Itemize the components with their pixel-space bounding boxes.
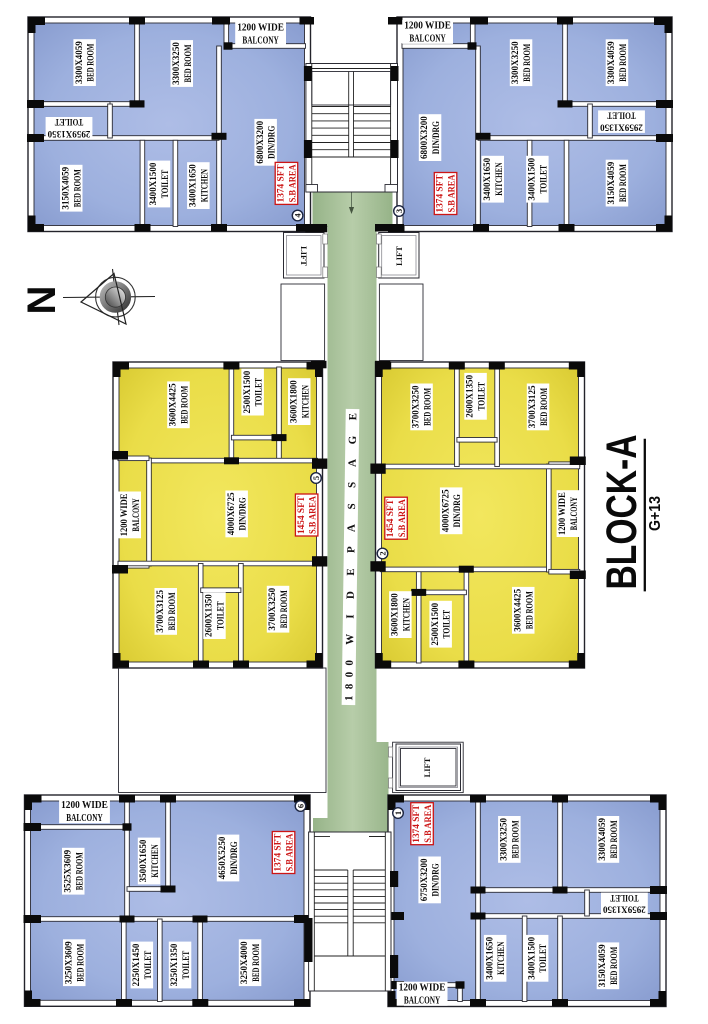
svg-text:TOILET: TOILET <box>143 950 154 979</box>
svg-text:BED ROOM: BED ROOM <box>609 947 620 985</box>
svg-text:6: 6 <box>296 804 306 808</box>
svg-text:4000X6725: 4000X6725 <box>226 492 237 535</box>
svg-text:1200 WIDE: 1200 WIDE <box>119 494 130 537</box>
svg-text:3300X4059: 3300X4059 <box>606 41 617 84</box>
svg-text:BED ROOM: BED ROOM <box>72 169 83 207</box>
svg-text:6800X3200: 6800X3200 <box>419 116 430 159</box>
svg-text:DIN/DRG: DIN/DRG <box>229 841 240 875</box>
svg-text:TOILET: TOILET <box>54 116 83 127</box>
svg-text:3525X3609: 3525X3609 <box>62 850 73 893</box>
svg-text:6750X3200: 6750X3200 <box>419 858 430 901</box>
svg-text:TOILET: TOILET <box>254 377 265 406</box>
svg-text:3600X4425: 3600X4425 <box>512 589 523 632</box>
svg-text:LIFT: LIFT <box>299 246 309 266</box>
svg-text:2959X1350: 2959X1350 <box>47 128 90 139</box>
svg-text:BED ROOM: BED ROOM <box>167 592 178 630</box>
svg-text:KITCHEN: KITCHEN <box>150 844 161 877</box>
svg-text:1454 SFT: 1454 SFT <box>296 495 307 534</box>
svg-text:1374 SFT: 1374 SFT <box>435 174 446 213</box>
svg-text:1374 SFT: 1374 SFT <box>276 164 287 203</box>
svg-text:DIN/DRG: DIN/DRG <box>431 121 442 155</box>
svg-text:TOILET: TOILET <box>538 944 549 973</box>
svg-text:3150X4059: 3150X4059 <box>606 162 617 205</box>
svg-text:BALCONY: BALCONY <box>66 813 103 824</box>
svg-text:3600X1800: 3600X1800 <box>288 380 299 423</box>
svg-text:S.B AREA: S.B AREA <box>308 496 319 534</box>
svg-text:3300X3250: 3300X3250 <box>499 818 510 861</box>
svg-text:S.B AREA: S.B AREA <box>447 174 458 212</box>
svg-text:N: N <box>20 286 64 315</box>
svg-text:1200 WIDE: 1200 WIDE <box>237 22 284 33</box>
svg-text:1: 1 <box>393 811 403 815</box>
svg-text:3400X1500: 3400X1500 <box>526 937 537 980</box>
svg-text:1454 SFT: 1454 SFT <box>385 499 396 538</box>
svg-text:LIFT: LIFT <box>394 246 404 266</box>
svg-text:2600X1350: 2600X1350 <box>465 375 476 418</box>
svg-text:TOILET: TOILET <box>160 169 171 198</box>
svg-text:3300X4059: 3300X4059 <box>74 41 85 84</box>
svg-text:BALCONY: BALCONY <box>242 35 279 46</box>
svg-text:DIN/DRG: DIN/DRG <box>238 497 249 531</box>
svg-text:3300X3250: 3300X3250 <box>171 42 182 85</box>
svg-text:S.B AREA: S.B AREA <box>288 164 299 202</box>
svg-text:BALCONY: BALCONY <box>131 498 142 531</box>
svg-text:BED ROOM: BED ROOM <box>251 944 262 982</box>
svg-text:BED ROOM: BED ROOM <box>423 388 434 426</box>
svg-text:BED ROOM: BED ROOM <box>86 44 97 82</box>
svg-text:6800X3200: 6800X3200 <box>255 121 266 164</box>
svg-text:TOILET: TOILET <box>181 950 192 979</box>
svg-text:3400X1500: 3400X1500 <box>148 162 159 205</box>
svg-text:BED ROOM: BED ROOM <box>74 852 85 890</box>
svg-text:3300X3250: 3300X3250 <box>510 41 521 84</box>
svg-text:G+13: G+13 <box>647 496 664 531</box>
svg-text:4000X6725: 4000X6725 <box>440 489 451 532</box>
svg-text:2500X1500: 2500X1500 <box>430 603 441 646</box>
svg-text:DIN/DRG: DIN/DRG <box>267 125 278 159</box>
svg-text:3400X1500: 3400X1500 <box>527 158 538 201</box>
svg-text:1200 WIDE: 1200 WIDE <box>399 983 446 994</box>
svg-text:BALCONY: BALCONY <box>569 497 580 530</box>
svg-text:BED ROOM: BED ROOM <box>609 820 620 858</box>
svg-text:BED ROOM: BED ROOM <box>618 44 629 82</box>
svg-text:3700X3125: 3700X3125 <box>527 385 538 428</box>
svg-text:1200 WIDE: 1200 WIDE <box>61 800 108 811</box>
svg-text:2600X1350: 2600X1350 <box>204 594 215 637</box>
svg-text:BED ROOM: BED ROOM <box>539 388 550 426</box>
svg-text:3250X3609: 3250X3609 <box>63 941 74 984</box>
svg-text:3400X1650: 3400X1650 <box>484 937 495 980</box>
svg-text:BALCONY: BALCONY <box>409 34 446 45</box>
svg-text:3700X3250: 3700X3250 <box>267 588 278 631</box>
svg-text:BED ROOM: BED ROOM <box>75 944 86 982</box>
svg-text:5: 5 <box>311 476 321 480</box>
svg-text:3600X1800: 3600X1800 <box>390 593 401 636</box>
svg-text:3700X3250: 3700X3250 <box>411 385 422 428</box>
svg-text:3150X4059: 3150X4059 <box>60 167 71 210</box>
svg-text:TOILET: TOILET <box>477 382 488 411</box>
svg-text:2: 2 <box>378 551 388 555</box>
svg-text:DIN/DRG: DIN/DRG <box>452 494 463 528</box>
svg-text:3600X4425: 3600X4425 <box>168 383 179 426</box>
svg-text:BED ROOM: BED ROOM <box>618 164 629 202</box>
svg-text:1374 SFT: 1374 SFT <box>411 804 422 843</box>
svg-text:2500X1500: 2500X1500 <box>242 371 253 414</box>
svg-text:BALCONY: BALCONY <box>404 996 441 1007</box>
svg-text:3700X3125: 3700X3125 <box>155 590 166 633</box>
svg-text:3250X4000: 3250X4000 <box>239 941 250 984</box>
svg-text:3400X1650: 3400X1650 <box>188 164 199 207</box>
svg-text:TOILET: TOILET <box>607 110 636 121</box>
svg-text:S.B AREA: S.B AREA <box>423 805 434 843</box>
svg-text:BLOCK-A: BLOCK-A <box>598 435 646 590</box>
svg-text:BED ROOM: BED ROOM <box>279 590 290 628</box>
svg-text:KITCHEN: KITCHEN <box>199 169 210 202</box>
svg-text:3300X4059: 3300X4059 <box>597 818 608 861</box>
svg-text:BED ROOM: BED ROOM <box>522 44 533 82</box>
svg-text:S.B AREA: S.B AREA <box>285 833 296 871</box>
svg-text:3: 3 <box>394 209 404 213</box>
svg-text:3500X1650: 3500X1650 <box>138 839 149 882</box>
svg-text:3250X1350: 3250X1350 <box>169 943 180 986</box>
svg-text:BED ROOM: BED ROOM <box>180 386 191 424</box>
svg-text:4650X5250: 4650X5250 <box>217 836 228 879</box>
svg-text:BED ROOM: BED ROOM <box>510 820 521 858</box>
svg-text:2959X1350: 2959X1350 <box>600 122 643 133</box>
svg-text:BED ROOM: BED ROOM <box>183 45 194 83</box>
svg-text:3150X4059: 3150X4059 <box>597 944 608 987</box>
svg-text:KITCHEN: KITCHEN <box>300 385 311 418</box>
svg-text:1200 WIDE: 1200 WIDE <box>404 21 451 32</box>
svg-text:2959X1350: 2959X1350 <box>603 904 646 915</box>
svg-text:2250X1450: 2250X1450 <box>131 943 142 986</box>
svg-text:TOILET: TOILET <box>216 601 227 630</box>
svg-text:S.B AREA: S.B AREA <box>397 499 408 537</box>
svg-text:TOILET: TOILET <box>610 892 639 903</box>
svg-text:BED ROOM: BED ROOM <box>524 591 535 629</box>
svg-text:KITCHEN: KITCHEN <box>494 163 505 196</box>
svg-text:KITCHEN: KITCHEN <box>496 942 507 975</box>
svg-text:KITCHEN: KITCHEN <box>401 598 412 631</box>
svg-text:LIFT: LIFT <box>422 757 432 777</box>
svg-text:DIN/DRG: DIN/DRG <box>431 863 442 897</box>
svg-text:1200 WIDE: 1200 WIDE <box>557 492 568 535</box>
svg-text:TOILET: TOILET <box>538 164 549 193</box>
svg-text:3400X1650: 3400X1650 <box>482 158 493 201</box>
svg-text:TOILET: TOILET <box>442 609 453 638</box>
svg-text:1374 SFT: 1374 SFT <box>273 833 284 872</box>
